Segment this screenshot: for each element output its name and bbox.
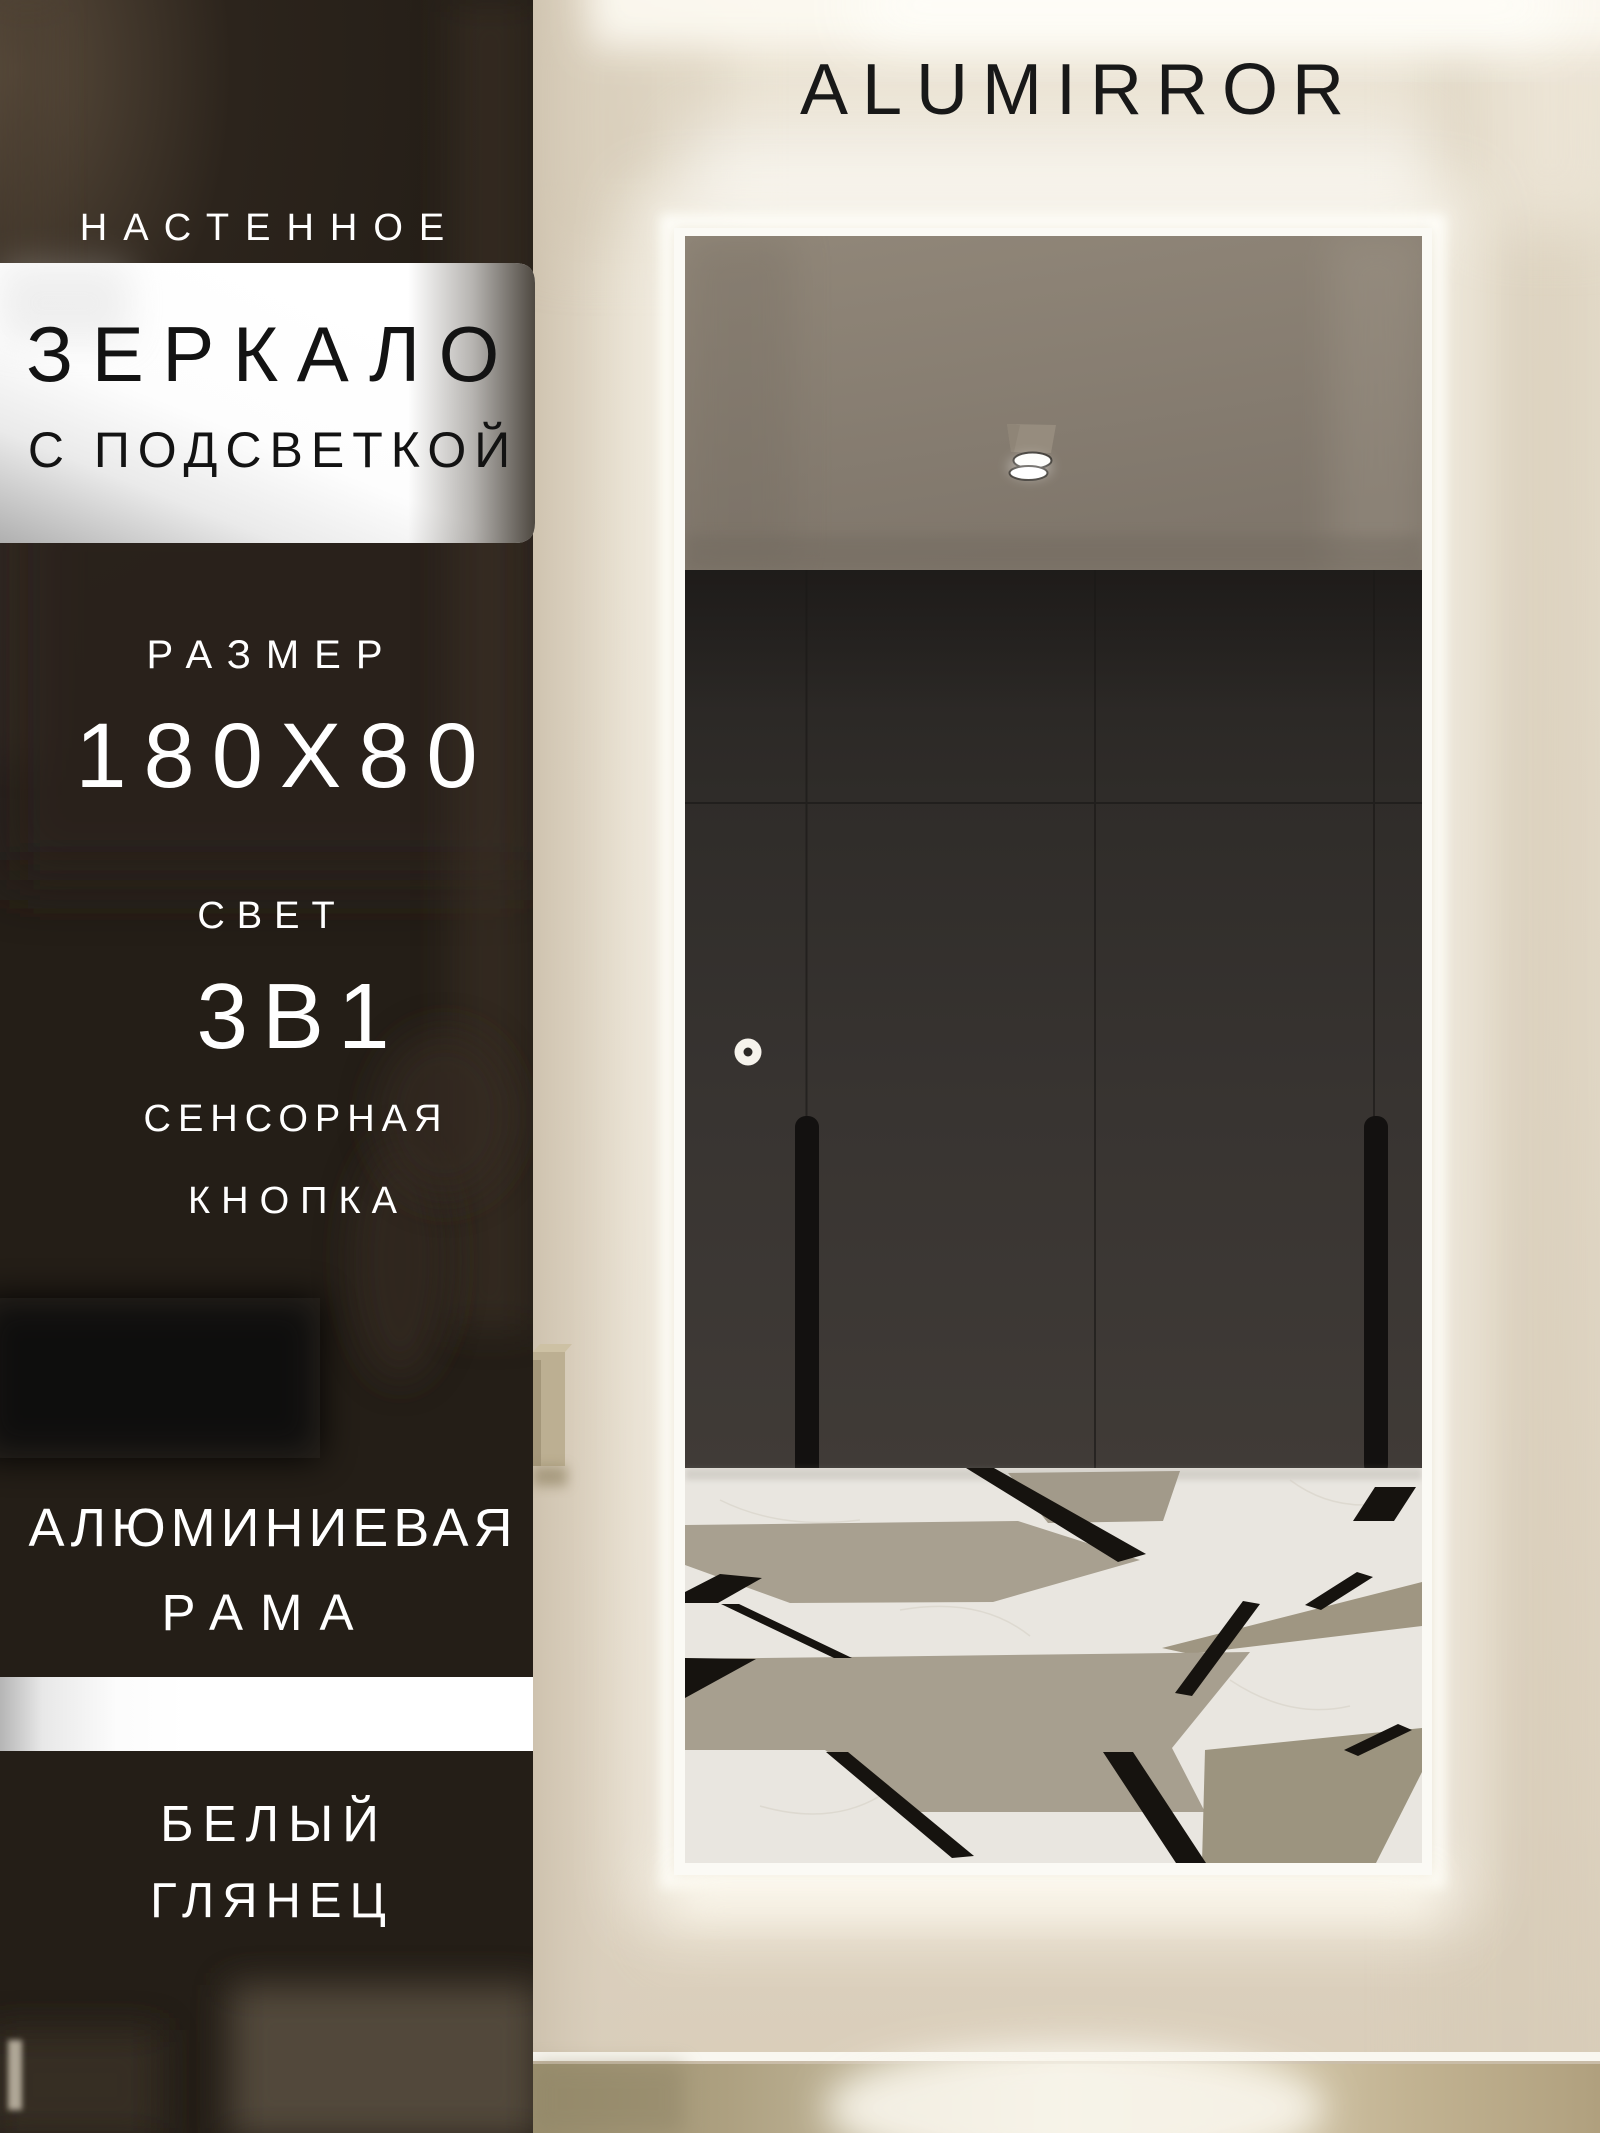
svg-text:180X80: 180X80 [75,705,494,807]
svg-text:СВЕТ: СВЕТ [197,895,346,937]
svg-text:НАСТЕННОЕ: НАСТЕННОЕ [80,207,460,249]
svg-text:СЕНСОРНАЯ: СЕНСОРНАЯ [144,1098,449,1140]
svg-text:РАЗМЕР: РАЗМЕР [146,633,397,677]
svg-text:АЛЮМИНИЕВАЯ: АЛЮМИНИЕВАЯ [28,1498,517,1558]
svg-text:ALUMIRROR: ALUMIRROR [800,50,1358,130]
svg-text:ГЛЯНЕЦ: ГЛЯНЕЦ [150,1874,394,1928]
svg-text:3 В 1: 3 В 1 [196,964,389,1068]
svg-text:РАМА: РАМА [161,1584,370,1641]
svg-text:С ПОДСВЕТКОЙ: С ПОДСВЕТКОЙ [28,421,518,478]
svg-text:КНОПКА: КНОПКА [188,1180,408,1222]
svg-text:ЗЕРКАЛО: ЗЕРКАЛО [26,310,518,398]
svg-text:БЕЛЫЙ: БЕЛЫЙ [160,1794,388,1852]
